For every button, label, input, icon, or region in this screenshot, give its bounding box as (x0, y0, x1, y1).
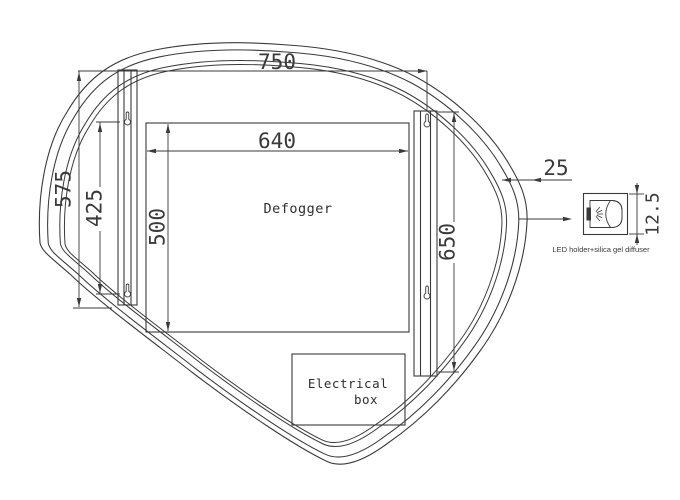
led-chip (587, 208, 592, 221)
dim-425-text: 425 (83, 189, 107, 227)
dim-125-arrow-top (635, 185, 639, 194)
electrical-box-label-line2: box (354, 392, 378, 407)
defogger-label: Defogger (263, 201, 332, 217)
led-bar-left-body (118, 70, 137, 305)
mounting-keyhole-top-right (424, 114, 430, 127)
dim-25-text: 25 (543, 156, 568, 180)
dim-650-arrow-bottom (452, 362, 456, 371)
leader-arrow (563, 217, 572, 221)
led-bar-left (118, 70, 137, 305)
mounting-keyhole-top-left (125, 112, 131, 125)
dim-575-text: 575 (52, 170, 76, 208)
dim-500-arrow-bottom (166, 322, 170, 331)
dim-575-arrow-bottom (77, 298, 81, 307)
dimension-750: 750 (78, 50, 427, 111)
led-bar-right (414, 111, 437, 376)
dim-125-arrow-bottom (635, 234, 639, 243)
silica-gel-diffuser (606, 201, 622, 228)
dim-640-arrow-right (399, 149, 408, 153)
dim-425-arrow-top (98, 123, 102, 132)
dim-650-text: 650 (436, 223, 460, 261)
mirror-technical-drawing: Defogger Electrical box 750 575 (0, 0, 680, 500)
dim-640-arrow-left (147, 149, 156, 153)
mounting-keyhole-bottom-left (125, 284, 131, 297)
dim-575-arrow-top (77, 72, 81, 81)
dim-25-arrow-b (532, 178, 541, 182)
led-holder-note: LED holder+silica gel diffuser (552, 245, 650, 254)
mounting-keyhole-bottom-right (424, 286, 430, 299)
dimension-640: 640 (147, 129, 408, 153)
dim-500-text: 500 (146, 208, 170, 246)
dimension-12-5: 12.5 (629, 183, 664, 245)
electrical-box-label-line1: Electrical (308, 376, 388, 391)
dimension-500: 500 (146, 124, 171, 331)
led-bar-right-body (414, 111, 437, 376)
dim-640-text: 640 (258, 129, 296, 153)
drawing-canvas: Defogger Electrical box 750 575 (0, 0, 680, 500)
dim-25-arrow-a (502, 178, 511, 182)
dim-750-arrow-right (418, 69, 427, 73)
dimension-650: 650 (436, 112, 460, 372)
led-light-rays-icon (596, 207, 603, 221)
led-holder-detail: LED holder+silica gel diffuser (552, 194, 650, 255)
dim-500-arrow-top (166, 124, 170, 133)
defogger-area (146, 123, 409, 332)
dim-125-text: 12.5 (643, 192, 664, 235)
dim-750-text: 750 (258, 50, 296, 74)
